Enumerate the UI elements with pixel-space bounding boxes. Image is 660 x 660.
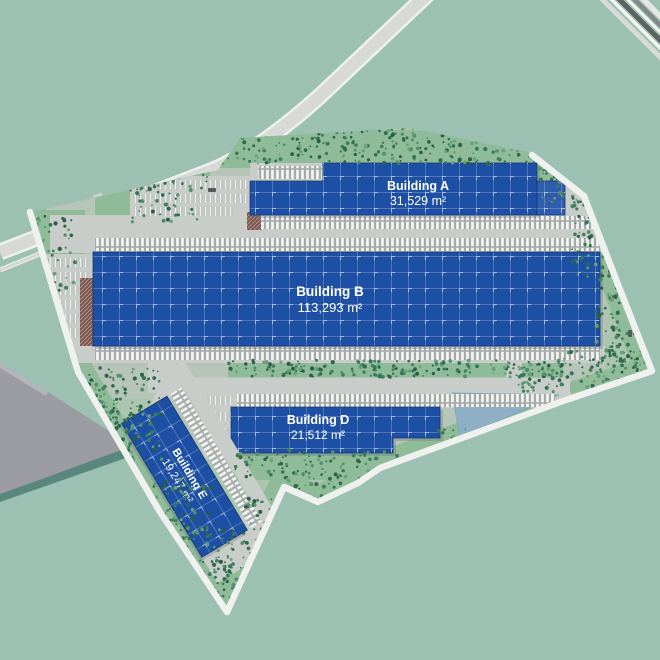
building-a-area: 31,529 m² [390,194,446,208]
site-plan-canvas: Building A 31,529 m² Building B 113,293 … [0,0,660,660]
building-d-label: Building D [287,413,350,427]
docks-d-north [237,394,555,407]
docks-a-north [258,166,322,179]
building-b[interactable]: Building B 113,293 m² [93,252,603,349]
building-b-label: Building B [296,284,364,299]
building-a-label: Building A [387,179,449,193]
office-block-b [80,278,93,346]
docks-b-north [95,238,600,251]
building-d-area: 21,512 m² [291,428,345,442]
site-plan-map: Building A 31,529 m² Building B 113,293 … [0,0,660,660]
building-b-area: 113,293 m² [298,300,363,315]
